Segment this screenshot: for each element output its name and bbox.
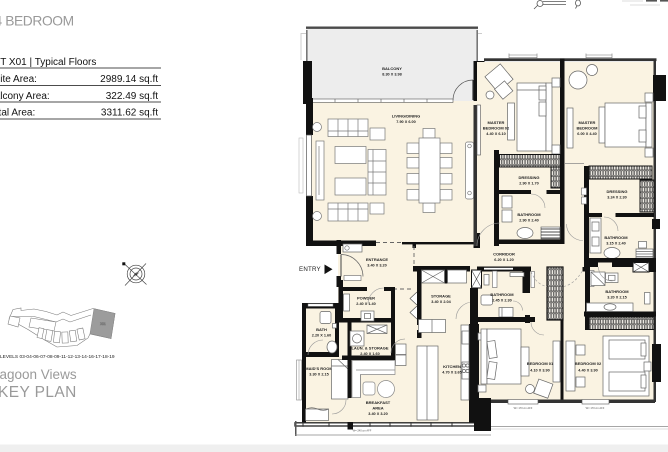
svg-text:3.40 X 3.20: 3.40 X 3.20 — [367, 264, 386, 268]
svg-text:DRESSING: DRESSING — [519, 175, 540, 180]
svg-text:6.00 X 4.40: 6.00 X 4.40 — [577, 132, 596, 136]
svg-text:AREA: AREA — [372, 406, 383, 411]
svg-text:BEDROOM: BEDROOM — [577, 126, 599, 131]
svg-text:BEDROOM 01: BEDROOM 01 — [527, 361, 554, 366]
svg-text:Suite Area:: Suite Area: — [0, 74, 37, 85]
svg-text:2.90 X 2.40: 2.90 X 2.40 — [519, 219, 538, 223]
svg-text:LAUN. & STORAGE: LAUN. & STORAGE — [351, 346, 388, 351]
svg-text:3.30 X 2.15: 3.30 X 2.15 — [309, 373, 328, 377]
svg-text:LIVING/DINING: LIVING/DINING — [392, 114, 420, 119]
svg-text:BREAKFAST: BREAKFAST — [366, 400, 391, 405]
svg-text:MASTER: MASTER — [579, 120, 596, 125]
svg-text:ENTRANCE: ENTRANCE — [366, 257, 389, 262]
svg-text:STORAGE: STORAGE — [431, 294, 451, 299]
svg-text:W= 170 cm AFF: W= 170 cm AFF — [586, 406, 605, 410]
svg-text:Lagoon Views: Lagoon Views — [0, 367, 77, 382]
svg-text:2.45 X 2.30: 2.45 X 2.30 — [492, 299, 511, 303]
svg-text:POWDER: POWDER — [357, 296, 375, 301]
svg-text:BEDROOM 02: BEDROOM 02 — [575, 361, 602, 366]
svg-text:BATHROOM: BATHROOM — [605, 289, 629, 294]
svg-text:BALCONY: BALCONY — [382, 66, 402, 71]
svg-text:4 BEDROOM: 4 BEDROOM — [0, 14, 74, 29]
svg-text:MASTER: MASTER — [488, 120, 505, 125]
svg-text:X01: X01 — [100, 322, 106, 326]
svg-text:BEDROOM 02: BEDROOM 02 — [483, 126, 510, 131]
svg-text:8.30 X 3.98: 8.30 X 3.98 — [382, 73, 401, 77]
svg-text:Total Area:: Total Area: — [0, 108, 35, 119]
svg-text:BATH: BATH — [316, 327, 327, 332]
svg-text:3.24 X 2.30: 3.24 X 2.30 — [607, 196, 626, 200]
svg-text:4.40 X 6.10: 4.40 X 6.10 — [486, 132, 505, 136]
svg-text:BATHROOM: BATHROOM — [490, 292, 514, 297]
svg-text:2.40 X 1.60: 2.40 X 1.60 — [360, 352, 379, 356]
svg-text:DRESSING: DRESSING — [607, 189, 628, 194]
svg-text:6.20 X 1.20: 6.20 X 1.20 — [494, 258, 513, 262]
svg-text:KEY PLAN: KEY PLAN — [0, 384, 77, 401]
svg-text:W= 240 cm AFF: W= 240 cm AFF — [353, 429, 372, 433]
svg-text:4.10 X 3.90: 4.10 X 3.90 — [530, 369, 549, 373]
svg-text:BATHROOM: BATHROOM — [517, 212, 541, 217]
svg-text:3.15 X 2.40: 3.15 X 2.40 — [606, 242, 625, 246]
svg-text:3.40 X 3.20: 3.40 X 3.20 — [368, 412, 387, 416]
svg-text:3.20 X 2.15: 3.20 X 2.15 — [607, 296, 626, 300]
svg-text:4.40 X 3.90: 4.40 X 3.90 — [578, 369, 597, 373]
svg-text:KITCHEN: KITCHEN — [443, 364, 461, 369]
svg-text:BATHROOM: BATHROOM — [604, 235, 628, 240]
svg-text:2989.14 sq.ft: 2989.14 sq.ft — [100, 74, 158, 85]
svg-text:W= 170 cm AFF: W= 170 cm AFF — [514, 406, 533, 410]
svg-text:ENTRY: ENTRY — [299, 266, 321, 273]
svg-text:2.90 X 1.70: 2.90 X 1.70 — [519, 182, 538, 186]
svg-text:7.90 X 6.00: 7.90 X 6.00 — [396, 120, 415, 124]
svg-text:3.40 X 2.04: 3.40 X 2.04 — [431, 300, 451, 304]
svg-text:MAID'S ROOM: MAID'S ROOM — [305, 366, 333, 371]
svg-text:3311.62 sq.ft: 3311.62 sq.ft — [101, 108, 158, 119]
svg-text:322.49 sq.ft: 322.49 sq.ft — [106, 91, 158, 102]
svg-text:LEVELS 03-04-06-07-08-09-11-12: LEVELS 03-04-06-07-08-09-11-12-13-14-16-… — [0, 354, 115, 360]
svg-text:UNIT X01 | Typical Floors: UNIT X01 | Typical Floors — [0, 57, 96, 68]
svg-text:Balcony Area:: Balcony Area: — [0, 91, 50, 102]
svg-text:CORRIDOR: CORRIDOR — [493, 252, 515, 257]
svg-text:2.20 X 1.60: 2.20 X 1.60 — [312, 334, 331, 338]
svg-text:2.40 X 1.40: 2.40 X 1.40 — [356, 302, 375, 306]
svg-text:4.70 X 3.65: 4.70 X 3.65 — [442, 371, 461, 375]
